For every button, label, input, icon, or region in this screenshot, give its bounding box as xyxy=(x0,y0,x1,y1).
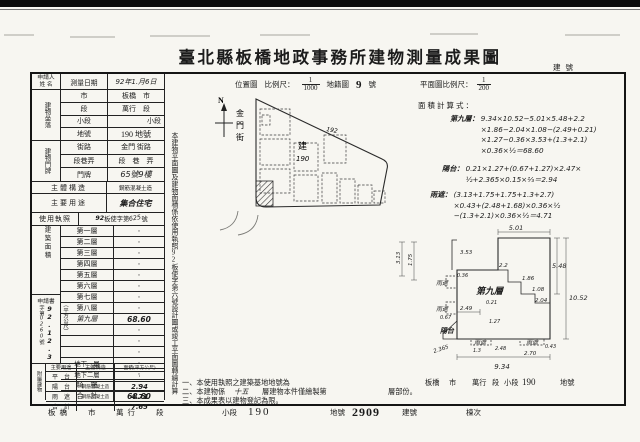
structure-value: 鋼筋混凝土造 xyxy=(107,182,164,193)
floor-value: · xyxy=(114,259,164,269)
license-number-hw: 625 xyxy=(129,214,142,223)
footer-city-suffix: 市 xyxy=(88,407,96,418)
license-value: 92 板使字第 625 號 xyxy=(79,213,164,225)
subject-building-hatched xyxy=(256,181,273,206)
application-field-suffix: 號 xyxy=(39,339,45,344)
footer-subsection-number: 190 xyxy=(248,406,271,418)
calc-canopy-label: 雨遮： xyxy=(430,190,452,200)
floor-label: 第三層 xyxy=(61,248,114,258)
usage-label: 主要用途 xyxy=(32,194,107,211)
city-value: 板橋 市 xyxy=(108,90,164,102)
annex-row-terrace: 平 台 · xyxy=(46,372,164,382)
usage-row: 主要用途 集合住宅 xyxy=(32,194,164,212)
dim-3-13: 3.13 xyxy=(396,251,402,264)
plan-scale-label: 平面圖比例尺： xyxy=(420,79,473,90)
footer-lot-label: 地號 xyxy=(330,407,345,418)
dim-0-21: 0.21 xyxy=(486,300,497,306)
door-row-number: 門牌 65號9樓 xyxy=(61,168,164,181)
calc-floor-body: 9.34×10.52−5.01×5.48+2.2 ×1.86−2.04×1.08… xyxy=(481,114,597,156)
application-date-hw: 92.12.3 xyxy=(46,305,54,363)
plan-balcony-label: 陽台 xyxy=(440,326,455,335)
annex-row-canopy: 雨 遮 鋼筋混凝土造 4.71 xyxy=(46,392,164,402)
footer-building-number-label: 建號 xyxy=(402,407,417,418)
building-outlines-dashed xyxy=(260,109,385,203)
plan-scale-header: 平面圖比例尺： 1 200 xyxy=(420,77,491,92)
plan-canopy-label: 雨遮 xyxy=(526,339,539,347)
subsection-label: 小段 xyxy=(61,116,108,128)
floor-rows: 第一層· 第二層· 第三層· 第四層· 第五層· 第六層· 第七層· 第八層· … xyxy=(61,226,164,363)
subsection-value: 小段 xyxy=(108,116,164,128)
annex-group-label: 附屬建物 xyxy=(32,364,46,400)
dim-0-36: 0.36 xyxy=(457,273,468,279)
floor-value: · xyxy=(114,292,164,302)
applicant-row: 申請人 姓 名 測量日期 92年1.月6日 xyxy=(32,74,164,90)
door-row-street: 街路 金門 街路 xyxy=(61,141,164,155)
survey-document: { "page": { "title": "臺北縣板橋地政事務所建物測量成果圖"… xyxy=(0,0,640,442)
lot-label: 地號 xyxy=(61,128,108,140)
lane-label: 段巷弄 xyxy=(61,155,108,168)
dim-2-49: 2.49 xyxy=(460,306,473,312)
footer-unit-label: 棟次 xyxy=(466,407,481,418)
note-3: 三、本成果表以建物登記為限。 xyxy=(182,396,620,406)
annex-row-balcony: 陽 台 鋼筋混凝土造 2.94 xyxy=(46,382,164,392)
calc-title: 面積計算式： xyxy=(418,100,475,111)
plan-left-strip xyxy=(452,240,457,270)
floor-label: 第七層 xyxy=(61,292,114,302)
calc-canopy: 雨遮： (3.13+1.75+1.75+1.3+2.7) ×0.43+(2.48… xyxy=(430,190,560,222)
application-field-prefix: 字第 xyxy=(39,305,45,315)
survey-date-value: 92年1.月6日 xyxy=(108,74,164,89)
top-black-bar xyxy=(0,0,640,7)
application-field-no-hw: 0260 xyxy=(39,315,45,339)
plan-scale-numerator: 1 xyxy=(482,77,486,84)
location-row-subsection: 小段 小段 xyxy=(61,116,164,129)
annex-structure: 鋼筋混凝土造 xyxy=(77,382,115,391)
calc-floor: 第九層： 9.34×10.52−5.01×5.48+2.2 ×1.86−2.04… xyxy=(450,114,597,156)
annex-area-hw: 4.71 xyxy=(115,392,164,401)
door-number-label: 門牌 xyxy=(61,168,108,181)
structure-row: 主體構造 鋼筋混凝土造 xyxy=(32,182,164,194)
calc-floor-label: 第九層： xyxy=(450,114,479,124)
footer-section: 萬行 xyxy=(116,407,139,418)
plan-scale-denominator: 200 xyxy=(477,84,492,92)
dim-2-48: 2.48 xyxy=(495,346,506,352)
lot-number-label: 190 xyxy=(296,155,310,163)
floor-value: · xyxy=(114,281,164,291)
dim-2-2: 2.2 xyxy=(499,263,508,269)
location-row-city: 市 板橋 市 xyxy=(61,90,164,103)
plan-canopy-label: 雨遮 xyxy=(474,339,487,347)
plan-floor-label: 第九層 xyxy=(476,286,505,297)
annex-structure xyxy=(77,372,115,381)
annex-usage: 陽 台 xyxy=(46,382,77,391)
license-suffix: 號 xyxy=(141,214,147,223)
floor-label: 第一層 xyxy=(61,226,114,236)
dim-bottom: 9.34 xyxy=(494,363,510,371)
area-unit-label: （平方公尺） xyxy=(61,302,69,346)
footer-subsection-label: 小段 xyxy=(222,407,237,418)
floor-label xyxy=(61,347,114,357)
license-year-hw: 92 xyxy=(95,215,104,222)
license-row: 使用執照 92 板使字第 625 號 xyxy=(32,213,164,226)
annex-header-usage: 主要用途 xyxy=(46,364,77,371)
annex-header-row: 主要用途 主體構造 面積(平方公尺) xyxy=(46,364,164,372)
floor-value: · xyxy=(114,325,164,335)
plan-canopy-label: 雨遮 xyxy=(436,305,449,313)
calc-balcony-body: 0.21×1.27+(0.67+1.27)×2.47× ½+2.365×0.15… xyxy=(466,164,582,185)
floor-area-group: 建築面積 申請書 字第0260號 92.12.3 第一層· 第二層· 第三層· … xyxy=(32,226,164,364)
annex-header-area: 面積(平方公尺) xyxy=(115,364,164,371)
dim-2-04: 2.04 xyxy=(535,298,548,304)
road-corner-curves xyxy=(220,211,258,235)
location-group: 建物坐落 市 板橋 市 段 萬行 段 小段 小段 地號 190 地號 xyxy=(32,90,164,141)
footer-lot-number: 2909 xyxy=(352,405,380,420)
footer-section-suffix: 段 xyxy=(156,407,164,418)
application-title: 申請書 xyxy=(37,296,54,305)
survey-date-label: 測量日期 xyxy=(61,74,108,89)
scan-noise xyxy=(150,35,210,37)
plan-scale-fraction: 1 200 xyxy=(477,77,492,92)
floor-area-group-label: 建築面積 xyxy=(41,226,51,294)
floor-label: 第四層 xyxy=(61,259,114,269)
dim-0-43: 0.43 xyxy=(545,344,556,350)
lane-value: 段 巷 弄 xyxy=(108,155,164,168)
calc-balcony: 陽台： 0.21×1.27+(0.67+1.27)×2.47× ½+2.365×… xyxy=(442,164,581,185)
top-thin-rule xyxy=(0,9,640,10)
note-3-text: 三、本成果表以建物登記為限。 xyxy=(182,396,283,406)
lot-prefix-label: 建 xyxy=(298,140,307,151)
main-table-border: 申請人 姓 名 測量日期 92年1.月6日 建物坐落 市 板橋 市 段 萬行 段… xyxy=(30,72,626,406)
floor-value: · xyxy=(114,248,164,258)
annex-usage: 雨 遮 xyxy=(46,392,77,401)
floor-value: · xyxy=(114,270,164,280)
footer-row: 板橋 市 萬行 段 小段 190 地號 2909 建號 棟次 xyxy=(0,407,640,423)
dim-0-67: 0.67 xyxy=(440,315,452,321)
floor-label: 第六層 xyxy=(61,281,114,291)
door-number-value: 65號9樓 xyxy=(108,168,164,181)
annex-usage: 平 台 xyxy=(46,372,77,381)
application-number: 字第0260號 xyxy=(39,305,46,363)
dim-1-08: 1.08 xyxy=(532,287,545,293)
annex-structure: 鋼筋混凝土造 xyxy=(77,392,115,401)
dim-2-70: 2.70 xyxy=(524,351,537,357)
dim-right-total: 10.52 xyxy=(569,294,588,302)
calc-balcony-label: 陽台： xyxy=(442,164,464,174)
scan-noise xyxy=(565,34,620,36)
map-scale-numerator: 1 xyxy=(309,77,313,84)
floor-label: 第五層 xyxy=(61,270,114,280)
dim-3-53: 3.53 xyxy=(460,250,473,256)
dim-top: 5.01 xyxy=(509,224,523,232)
plan-canopy-label: 雨遮 xyxy=(436,279,449,287)
application-box: 申請書 字第0260號 92.12.3 xyxy=(32,294,60,363)
dim-1-86: 1.86 xyxy=(522,276,535,282)
location-group-label: 建物坐落 xyxy=(32,90,61,140)
lot-value: 190 地號 xyxy=(108,128,164,140)
scan-noise xyxy=(430,33,478,35)
floor-plan: 5.01 5.48 10.52 9.34 2.2 1.86 1.08 2.04 … xyxy=(394,224,624,380)
footer-city: 板橋 xyxy=(48,407,71,418)
dim-2-365: 2.365 xyxy=(433,344,450,355)
scan-noise xyxy=(260,34,310,36)
side-note-vertical: 本建物平面圖及建物面積係依使用執照92板使字第六號設計圖或竣工平面圖轉繪計算 xyxy=(165,132,181,400)
door-group: 建物門牌 街路 金門 街路 段巷弄 段 巷 弄 門牌 65號9樓 xyxy=(32,141,164,182)
floor-value: · xyxy=(114,336,164,346)
license-prefix: 板使字第 xyxy=(104,214,129,223)
location-row-lot: 地號 190 地號 xyxy=(61,128,164,140)
license-label: 使用執照 xyxy=(32,213,79,225)
door-group-label: 建物門牌 xyxy=(32,141,61,181)
annex-header-structure: 主體構造 xyxy=(77,364,115,371)
scan-noise xyxy=(4,34,34,36)
annex-area: · xyxy=(115,372,164,381)
dim-1-3: 1.3 xyxy=(473,348,481,354)
street-label: 街路 xyxy=(61,141,108,154)
survey-form: 申請人 姓 名 測量日期 92年1.月6日 建物坐落 市 板橋 市 段 萬行 段… xyxy=(32,74,165,400)
floor-value: · xyxy=(114,347,164,357)
note-1-lot-number: 190 xyxy=(522,377,536,387)
calc-canopy-body: (3.13+1.75+1.75+1.3+2.7) ×0.43+(2.48+1.6… xyxy=(454,190,561,222)
usage-value: 集合住宅 xyxy=(107,194,164,211)
dim-1-75: 1.75 xyxy=(408,253,414,266)
section-label: 段 xyxy=(61,103,108,115)
annex-group: 附屬建物 主要用途 主體構造 面積(平方公尺) 平 台 · 陽 台 鋼筋混凝土造… xyxy=(32,364,164,400)
dim-1-27: 1.27 xyxy=(489,319,501,325)
applicant-label: 申請人 姓 名 xyxy=(32,74,61,89)
annex-area-hw: 2.94 xyxy=(115,382,164,391)
dim-right-upper: 5.48 xyxy=(552,262,566,270)
floor-label: 第二層 xyxy=(61,237,114,247)
north-label: N xyxy=(218,96,224,105)
door-row-lane: 段巷弄 段 巷 弄 xyxy=(61,155,164,169)
structure-label: 主體構造 xyxy=(32,182,107,193)
floor-value-ninth: 68.60 xyxy=(114,314,164,324)
location-map: N 金門街 建 190 192 xyxy=(180,87,398,237)
floor-value: · xyxy=(114,303,164,313)
street-value: 金門 街路 xyxy=(108,141,164,154)
document-title: 臺北縣板橋地政事務所建物測量成果圖 xyxy=(150,44,530,68)
location-row-section: 段 萬行 段 xyxy=(61,103,164,116)
street-name-label: 金門街 xyxy=(236,108,245,145)
city-label: 市 xyxy=(61,90,108,102)
floor-value: · xyxy=(114,226,164,236)
scan-noise xyxy=(70,36,115,38)
floor-value: · xyxy=(114,237,164,247)
section-value: 萬行 段 xyxy=(108,103,164,115)
